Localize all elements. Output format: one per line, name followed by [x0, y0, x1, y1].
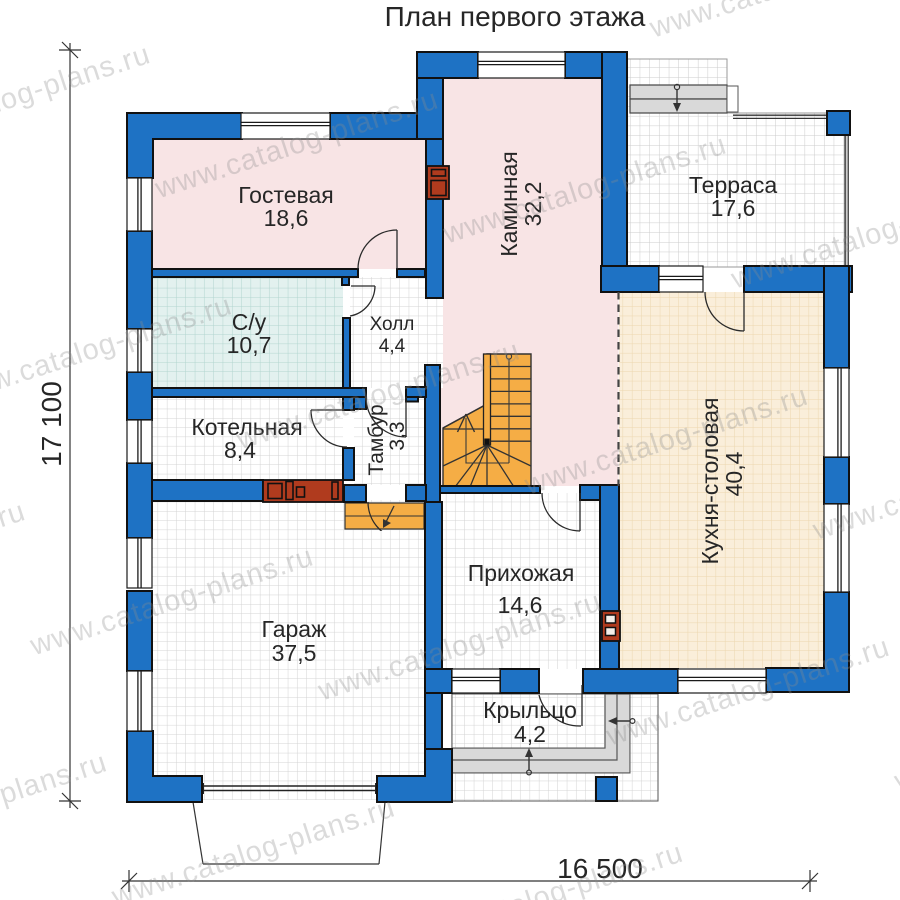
- svg-text:17 100: 17 100: [36, 381, 67, 467]
- svg-text:37,5: 37,5: [272, 640, 317, 666]
- svg-text:Крыльцо: Крыльцо: [483, 697, 577, 723]
- svg-text:4,2: 4,2: [514, 721, 546, 747]
- svg-text:План первого этажа: План первого этажа: [385, 1, 646, 32]
- svg-text:10,7: 10,7: [227, 332, 272, 358]
- svg-text:40,4: 40,4: [721, 451, 747, 496]
- svg-text:4,4: 4,4: [379, 336, 406, 357]
- svg-text:Гараж: Гараж: [262, 616, 328, 642]
- svg-text:18,6: 18,6: [264, 205, 309, 231]
- svg-text:Прихожая: Прихожая: [468, 560, 575, 586]
- svg-text:Холл: Холл: [370, 314, 415, 335]
- svg-text:17,6: 17,6: [711, 195, 756, 221]
- svg-text:3,3: 3,3: [386, 421, 409, 450]
